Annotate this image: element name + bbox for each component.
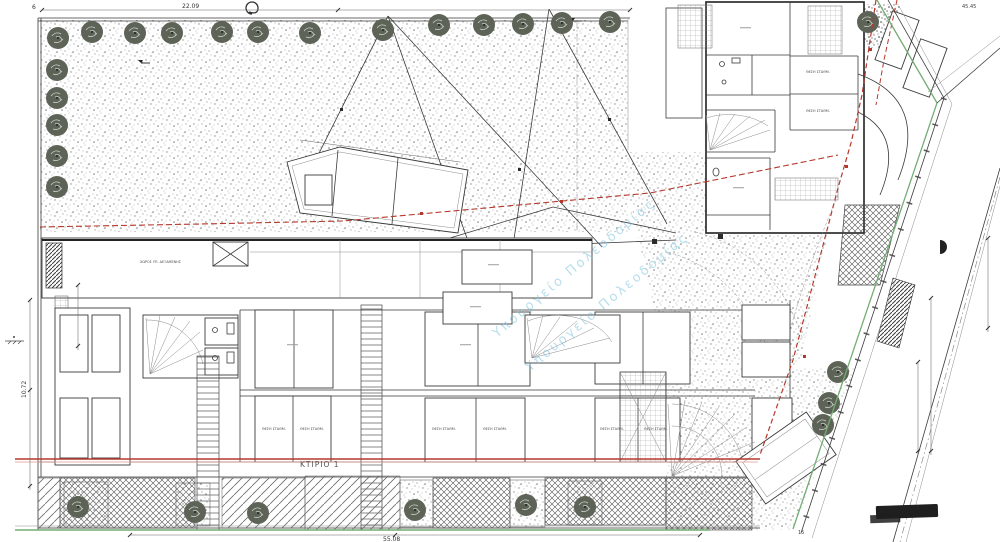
parking-label-4: ΘΕΣΗ ΣΤΑΘΜ. (300, 427, 324, 431)
parking-label-5: ΘΕΣΗ ΣΤΑΘΜ. (432, 427, 456, 431)
floor-plan-canvas: ΧΩΡΟΣ ΥΠ. ΔΕΞΑΜΕΝΗΣ ΘΕΣΗ ΣΤΑΘΜ. ΘΕΣΗ ΣΤΑ… (0, 0, 1000, 542)
road-marker-icon (940, 240, 947, 254)
dim-top: 22.09 (182, 3, 199, 10)
dim-top-right: 45.45 (962, 4, 976, 10)
dim-bottom: 55.08 (383, 536, 400, 542)
building-label: ΚΤΙΡΙΟ 1 (300, 460, 340, 469)
parking-label-2: ΘΕΣΗ ΣΤΑΘΜ. (806, 109, 830, 113)
dim-left: 10.72 (21, 381, 28, 398)
basement-strip-label: ΧΩΡΟΣ ΥΠ. ΔΕΞΑΜΕΝΗΣ (140, 260, 181, 264)
ground-level-marker-icon (5, 341, 24, 344)
bottom-paved-band (38, 476, 752, 530)
parking-label-1: ΘΕΣΗ ΣΤΑΘΜ. (806, 70, 830, 74)
parking-label-7: ΘΕΣΗ ΣΤΑΘΜ. (600, 427, 624, 431)
parking-label-8: ΘΕΣΗ ΣΤΑΘΜ. (644, 427, 668, 431)
ramp-hatch (46, 243, 62, 288)
site-plan-drawing: ΧΩΡΟΣ ΥΠ. ΔΕΞΑΜΕΝΗΣ ΘΕΣΗ ΣΤΑΘΜ. ΘΕΣΗ ΣΤΑ… (0, 0, 1000, 542)
stair-core-1 (143, 315, 238, 378)
curve-symbol-icon (246, 2, 258, 14)
paved-court (838, 205, 900, 285)
parking-label-6: ΘΕΣΗ ΣΤΑΘΜ. (483, 427, 507, 431)
parking-label-3: ΘΕΣΗ ΣΤΑΘΜ. (262, 427, 286, 431)
planting-strip (877, 278, 915, 348)
dim-road: 15 (798, 530, 804, 536)
dim-corner: 6 (32, 4, 36, 11)
building-top-right: ΘΕΣΗ ΣΤΑΘΜ. ΘΕΣΗ ΣΤΑΘΜ. (678, 2, 864, 233)
